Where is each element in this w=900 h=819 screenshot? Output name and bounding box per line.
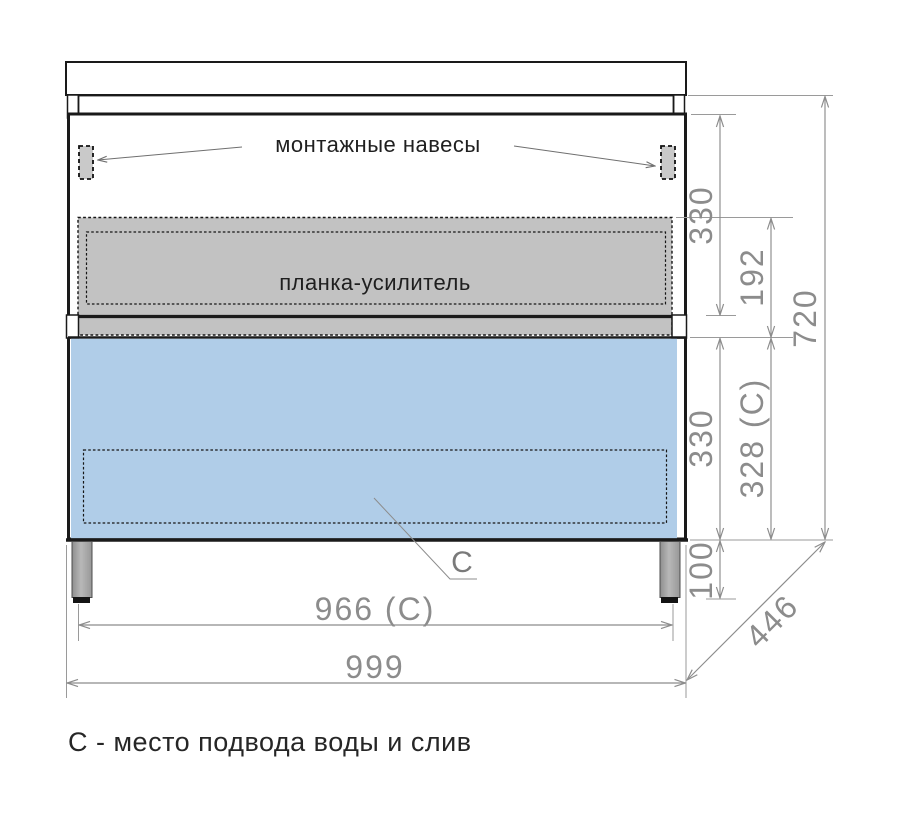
- countertop-basin: [66, 62, 686, 95]
- dim-text-192: 192: [734, 247, 770, 306]
- leg-right-foot: [661, 597, 678, 603]
- dim-text-100: 100: [683, 540, 719, 599]
- reinforcement-bar-label: планка-усилитель: [279, 270, 471, 295]
- side-wall-gap-left: [67, 315, 79, 338]
- side-wall-gap-right: [672, 315, 687, 338]
- mounting-hangers-label: монтажные навесы: [275, 132, 480, 157]
- mounting-bracket-left: [79, 146, 93, 179]
- technical-drawing: планка-усилитель монтажные навесы C 330 …: [0, 0, 900, 819]
- leg-left-foot: [73, 597, 90, 603]
- basin-apron: [79, 96, 674, 114]
- c-marker-label: C: [451, 546, 473, 579]
- dim-text-999: 999: [345, 649, 404, 685]
- dim-text-446: 446: [738, 587, 805, 654]
- dim-text-lower-330: 330: [683, 408, 719, 467]
- leg-left: [72, 542, 92, 598]
- footnote-text: С - место подвода воды и слив: [68, 727, 472, 757]
- drawer-front: [71, 339, 677, 539]
- leg-right: [660, 542, 680, 598]
- dim-text-720: 720: [787, 288, 823, 347]
- mounting-bracket-right: [661, 146, 675, 179]
- dim-text-upper-330: 330: [683, 185, 719, 244]
- dim-text-966c: 966 (C): [315, 591, 436, 627]
- dim-text-328c: 328 (C): [734, 378, 770, 499]
